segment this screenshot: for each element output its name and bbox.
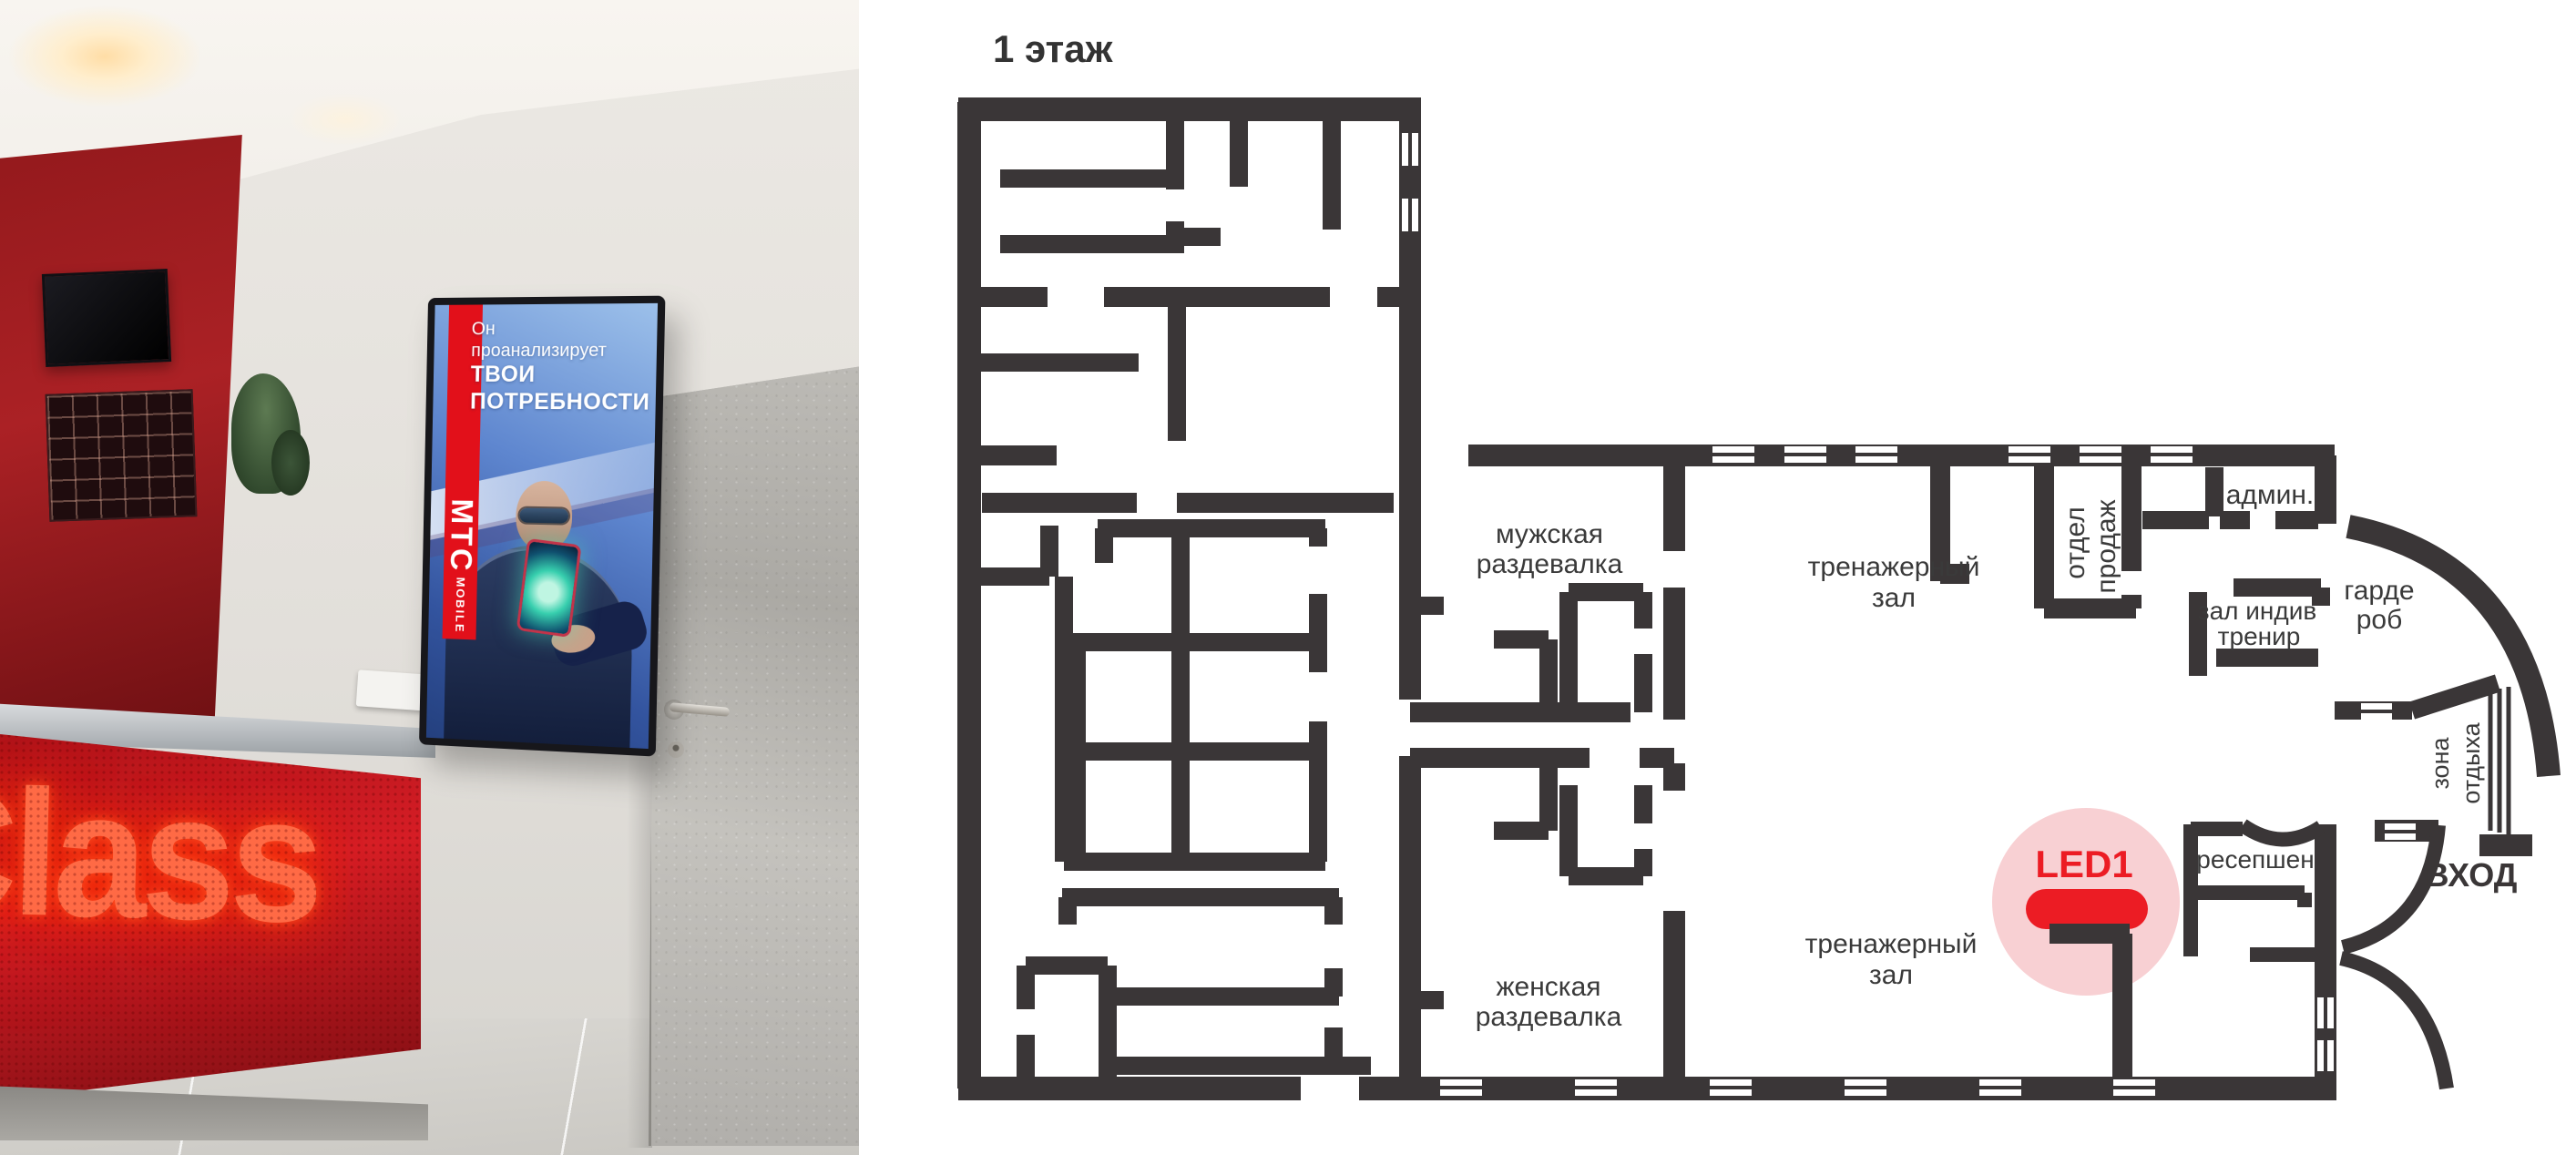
label-rest-zone-1: зона — [2427, 737, 2454, 790]
label-wardrobe-1: гарде — [2344, 576, 2414, 606]
glazing-lines — [2490, 687, 2509, 834]
label-admin: админ. — [2226, 480, 2314, 510]
led-marker-pill — [2026, 889, 2148, 929]
label-reception: ресепшен — [2196, 845, 2314, 874]
label-wardrobe-2: роб — [2356, 605, 2403, 635]
label-mens-locker-2: раздевалка — [1477, 549, 1623, 579]
label-sales-1: отдел — [2060, 506, 2090, 578]
label-individual-1: зал индив — [2198, 597, 2316, 625]
partition-walls — [969, 109, 2498, 1082]
label-rest-zone-2: отдыха — [2458, 721, 2485, 803]
label-womens-locker-1: женская — [1496, 972, 1600, 1002]
label-gym-bottom-1: тренажерный — [1805, 929, 1978, 959]
led-marker — [1992, 808, 2180, 996]
label-mens-locker-1: мужская — [1496, 519, 1603, 549]
label-gym-bottom-2: зал — [1869, 960, 1913, 990]
plan-title: 1 этаж — [993, 27, 1114, 70]
label-womens-locker-2: раздевалка — [1476, 1002, 1622, 1032]
label-entrance: ВХОД — [2426, 856, 2518, 894]
label-gym-top-1: тренажерный — [1808, 552, 1980, 582]
led-marker-label: LED1 — [2035, 843, 2132, 885]
reception-counter-walls — [2191, 824, 2326, 956]
label-sales-2: продаж — [2091, 499, 2121, 593]
label-individual-2: тренир — [2218, 622, 2301, 650]
walls-group — [958, 102, 2549, 1089]
floor-plan: 1 этаж мужская раздевалка тренажерный за… — [0, 0, 2576, 1155]
label-gym-top-2: зал — [1872, 583, 1916, 613]
